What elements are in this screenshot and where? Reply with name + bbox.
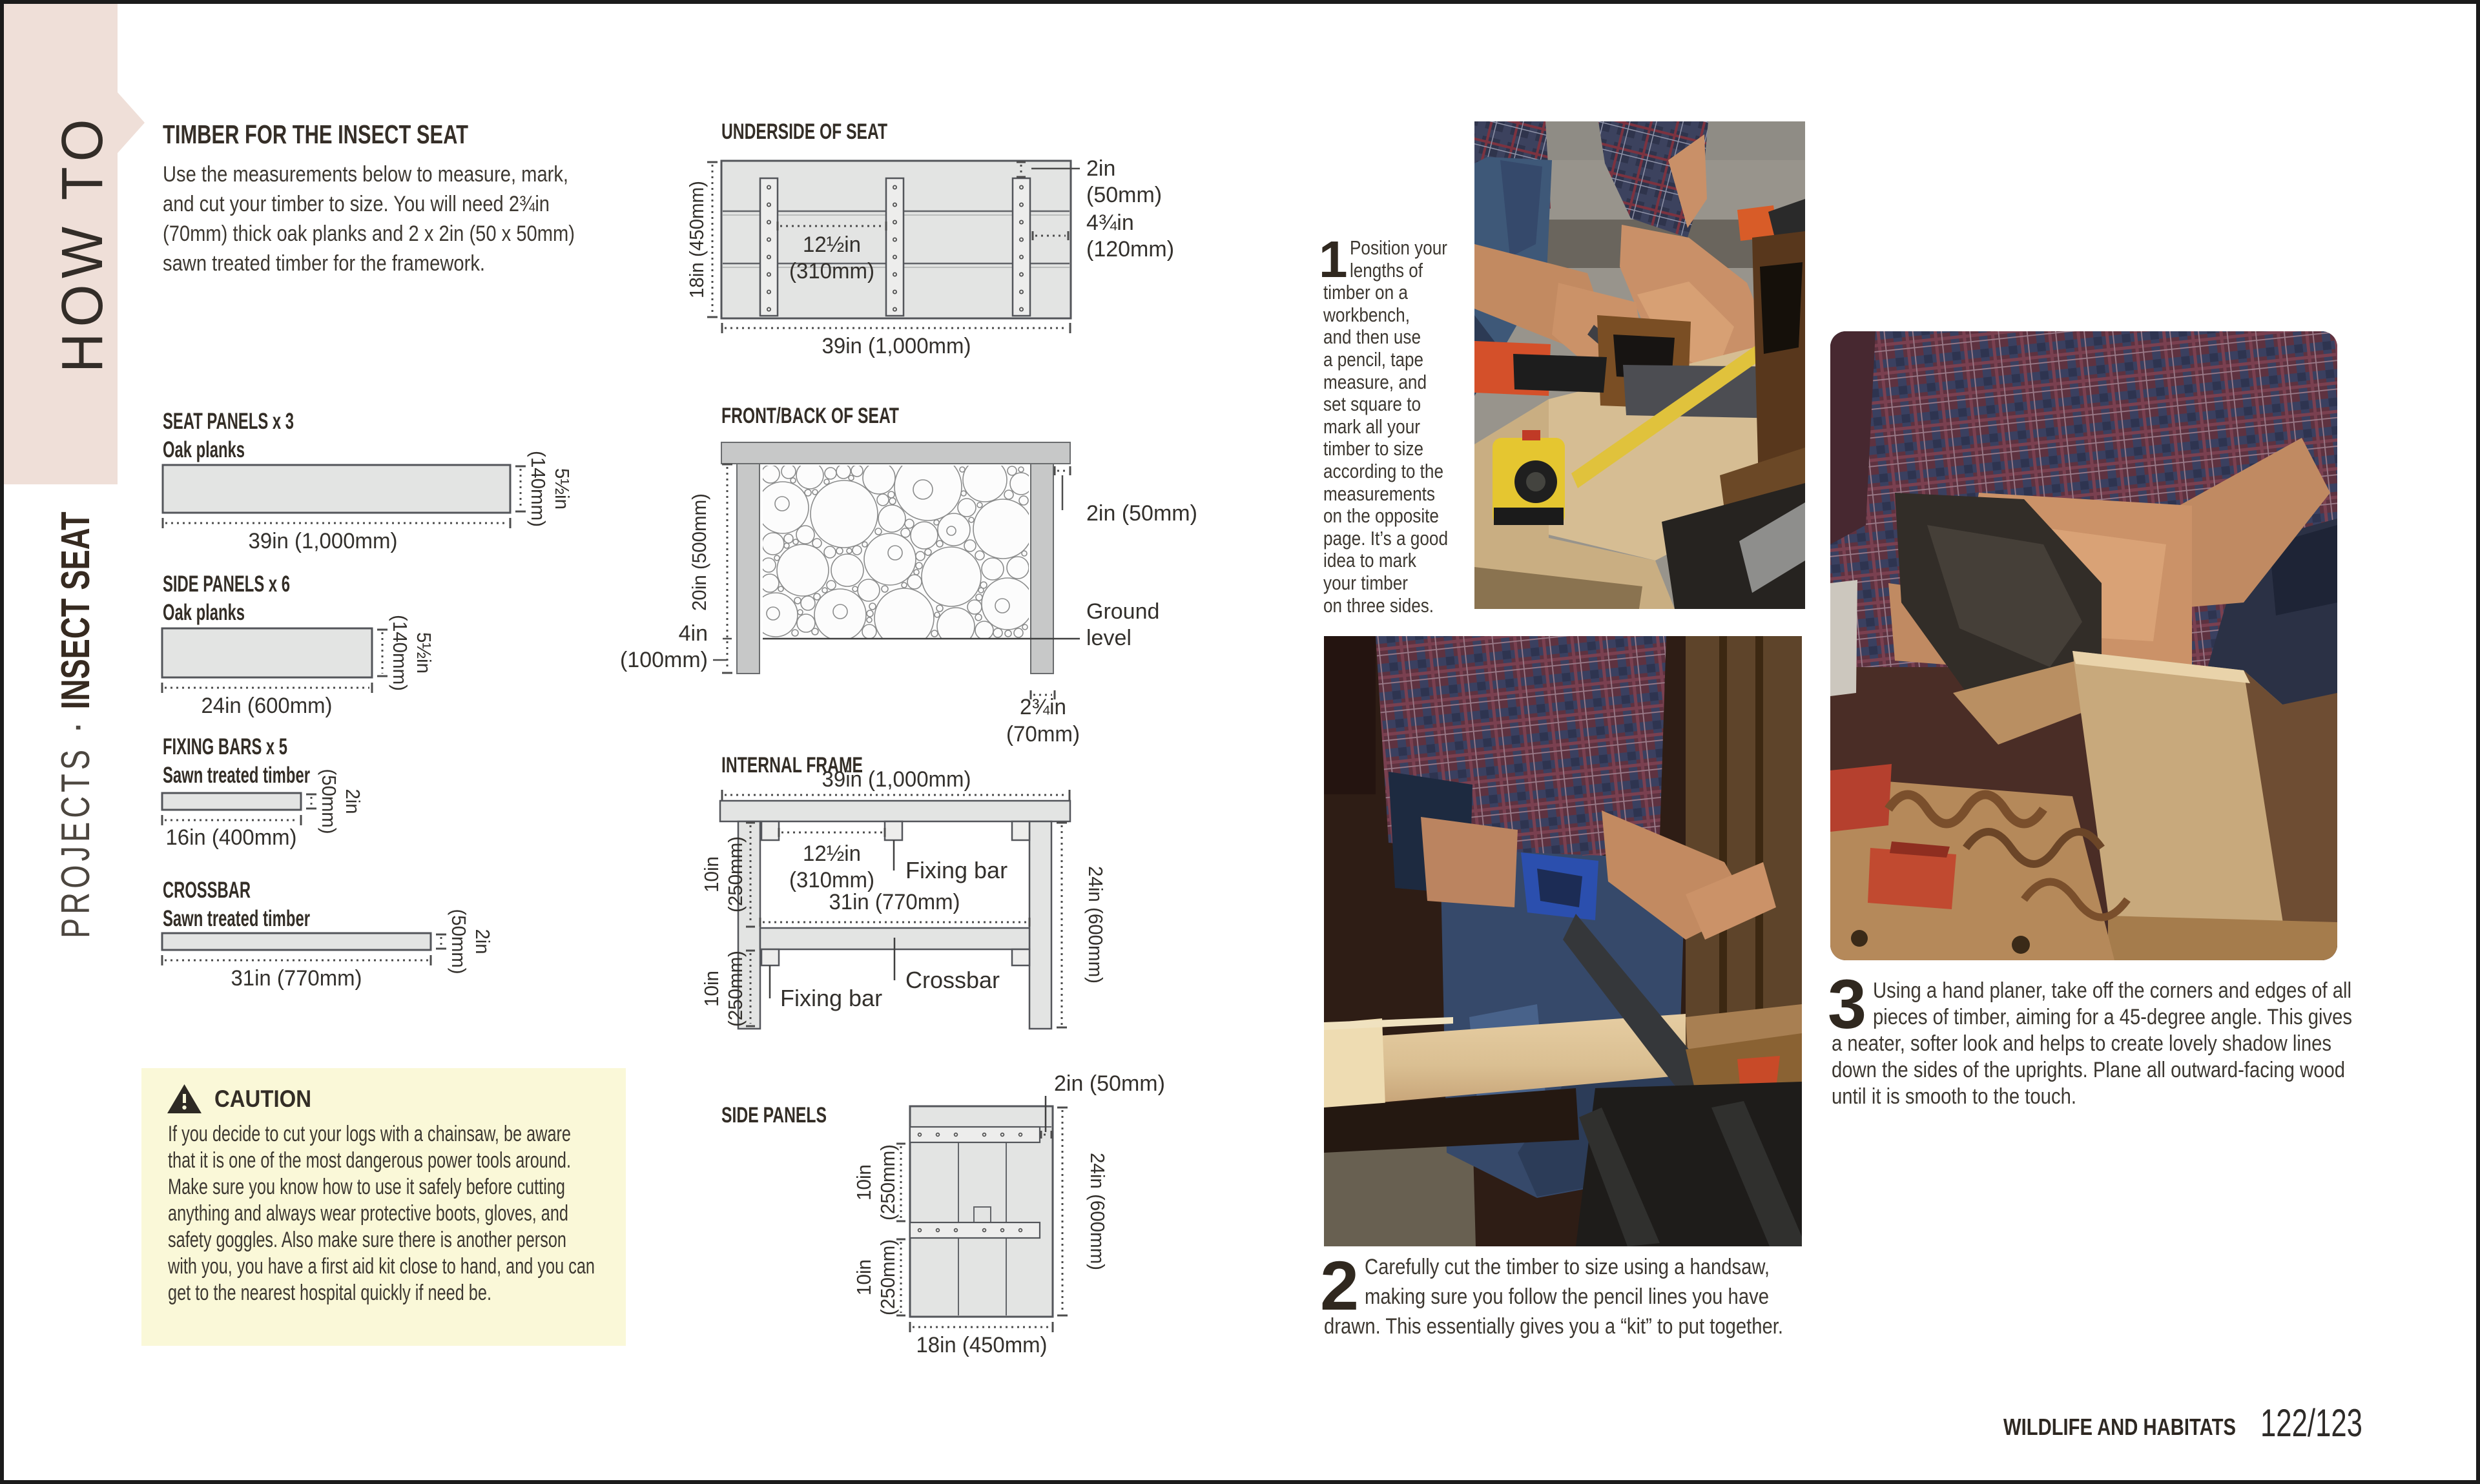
svg-text:(140mm): (140mm) [527,451,550,527]
svg-text:timber to size: timber to size [1323,437,1423,460]
svg-text:CROSSBAR: CROSSBAR [163,878,251,903]
svg-text:page. It’s a good: page. It’s a good [1323,527,1448,550]
svg-text:Position your: Position your [1350,236,1447,259]
svg-text:(100mm): (100mm) [620,648,708,672]
svg-text:SEAT PANELS x 3: SEAT PANELS x 3 [163,409,294,434]
svg-text:anything and always wear prote: anything and always wear protective boot… [168,1201,568,1226]
svg-text:(310mm): (310mm) [789,868,874,892]
svg-text:Fixing bar: Fixing bar [905,857,1008,883]
svg-text:31in (770mm): 31in (770mm) [829,890,960,914]
svg-text:12½in: 12½in [803,841,861,866]
svg-text:Use the measurements below to: Use the measurements below to measure, m… [163,162,568,187]
svg-text:making sure you follow the pen: making sure you follow the pencil lines … [1365,1284,1769,1309]
svg-text:Oak planks: Oak planks [163,600,245,625]
svg-text:down the sides of the uprights: down the sides of the uprights. Plane al… [1832,1058,2345,1082]
svg-text:sawn treated timber for the fr: sawn treated timber for the framework. [163,251,485,276]
svg-text:until it is smooth to the touc: until it is smooth to the touch. [1832,1084,2076,1109]
svg-text:a pencil, tape: a pencil, tape [1323,348,1423,371]
svg-text:10in: 10in [700,971,723,1007]
svg-text:Carefully cut the timber to si: Carefully cut the timber to size using a… [1365,1255,1770,1279]
svg-text:lengths of: lengths of [1350,259,1423,282]
svg-text:(250mm): (250mm) [724,836,747,912]
svg-text:4in: 4in [679,621,708,646]
svg-text:level: level [1086,626,1131,650]
svg-text:on the opposite: on the opposite [1323,504,1439,527]
svg-text:2¾in: 2¾in [1020,695,1066,719]
svg-text:2in: 2in [342,789,364,814]
svg-text:a neater, softer look and help: a neater, softer look and helps to creat… [1832,1031,2331,1056]
svg-text:(50mm): (50mm) [1086,183,1162,207]
svg-text:5½in: 5½in [551,468,573,510]
svg-text:39in (1,000mm): 39in (1,000mm) [249,529,398,553]
svg-text:according to the: according to the [1323,460,1443,482]
svg-text:If you decide to cut your logs: If you decide to cut your logs with a ch… [168,1122,571,1146]
svg-text:24in (600mm): 24in (600mm) [1084,866,1107,984]
svg-text:10in: 10in [700,856,723,892]
svg-text:WILDLIFE AND HABITATS: WILDLIFE AND HABITATS [2003,1414,2236,1440]
svg-text:HOW TO: HOW TO [50,113,115,373]
svg-text:that it is one of the most dan: that it is one of the most dangerous pow… [168,1148,571,1173]
svg-text:on three sides.: on three sides. [1323,594,1434,617]
svg-text:24in (600mm): 24in (600mm) [201,694,333,718]
svg-text:pieces of timber, aiming for a: pieces of timber, aiming for a 45-degree… [1873,1005,2352,1029]
svg-text:(120mm): (120mm) [1086,237,1174,262]
svg-text:your timber: your timber [1323,572,1408,594]
svg-text:CAUTION: CAUTION [214,1086,311,1112]
svg-text:get to the nearest hospital qu: get to the nearest hospital quickly if n… [168,1281,491,1305]
svg-text:UNDERSIDE OF SEAT: UNDERSIDE OF SEAT [721,119,887,144]
svg-text:set square to: set square to [1323,393,1421,415]
svg-text:Using a hand planer, take off: Using a hand planer, take off the corner… [1873,978,2351,1003]
svg-text:18in (450mm): 18in (450mm) [916,1333,1048,1357]
svg-text:FIXING BARS x 5: FIXING BARS x 5 [163,734,287,759]
svg-text:2in: 2in [1086,156,1115,181]
svg-text:12½in: 12½in [803,232,861,257]
svg-text:FRONT/BACK OF SEAT: FRONT/BACK OF SEAT [721,404,899,428]
svg-text:TIMBER FOR THE INSECT SEAT: TIMBER FOR THE INSECT SEAT [163,119,468,149]
svg-text:4¾in: 4¾in [1086,211,1134,235]
svg-text:31in (770mm): 31in (770mm) [231,966,362,991]
svg-text:122/123: 122/123 [2260,1401,2362,1445]
svg-text:(250mm): (250mm) [876,1239,899,1315]
svg-text:and then use: and then use [1323,325,1421,348]
svg-text:10in: 10in [852,1164,875,1201]
svg-text:with you, you have a first aid: with you, you have a first aid kit close… [167,1254,595,1279]
svg-text:and cut your timber to size. Y: and cut your timber to size. You will ne… [163,192,550,216]
svg-text:20in (500mm): 20in (500mm) [688,493,710,611]
svg-text:2in (50mm): 2in (50mm) [1086,501,1197,526]
svg-text:24in (600mm): 24in (600mm) [1086,1153,1109,1270]
svg-text:(50mm): (50mm) [318,769,340,834]
svg-text:SIDE PANELS x 6: SIDE PANELS x 6 [163,572,290,597]
svg-text:(50mm): (50mm) [448,909,470,974]
svg-text:idea to mark: idea to mark [1323,549,1416,572]
svg-text:(70mm) thick oak planks and 2: (70mm) thick oak planks and 2 x 2in (50 … [163,222,575,246]
svg-text:Sawn treated timber: Sawn treated timber [163,763,310,788]
svg-text:SIDE PANELS: SIDE PANELS [721,1103,827,1128]
svg-text:(140mm): (140mm) [389,615,411,691]
svg-text:mark all your: mark all your [1323,415,1420,438]
svg-text:(70mm): (70mm) [1006,722,1080,747]
svg-text:18in (450mm): 18in (450mm) [685,181,708,298]
svg-text:Oak planks: Oak planks [163,437,245,462]
svg-text:Sawn treated timber: Sawn treated timber [163,906,310,931]
svg-text:timber on a: timber on a [1323,281,1409,304]
svg-text:2in (50mm): 2in (50mm) [1054,1071,1165,1096]
svg-text:(310mm): (310mm) [789,259,874,283]
svg-text:drawn. This essentially gives: drawn. This essentially gives you a “kit… [1324,1314,1783,1339]
svg-text:measurements: measurements [1323,482,1435,505]
svg-text:39in (1,000mm): 39in (1,000mm) [822,334,971,358]
svg-text:measure, and: measure, and [1323,371,1427,393]
svg-text:2: 2 [1320,1246,1359,1324]
svg-text:Fixing bar: Fixing bar [780,985,882,1011]
svg-text:Crossbar: Crossbar [905,967,1000,993]
svg-text:workbench,: workbench, [1323,304,1410,326]
svg-text:10in: 10in [852,1259,875,1295]
svg-text:5½in: 5½in [413,632,435,674]
svg-text:39in (1,000mm): 39in (1,000mm) [822,767,971,792]
svg-text:2in: 2in [471,929,494,954]
svg-text:PROJECTS·INSECT SEAT: PROJECTS·INSECT SEAT [54,511,98,938]
svg-text:(250mm): (250mm) [724,951,747,1027]
svg-text:(250mm): (250mm) [876,1144,899,1221]
svg-text:safety goggles. Also make sure: safety goggles. Also make sure there is … [168,1228,566,1252]
svg-text:Make sure you know how to use: Make sure you know how to use it safely … [168,1175,565,1199]
svg-text:1: 1 [1319,231,1348,288]
svg-text:16in (400mm): 16in (400mm) [166,825,297,850]
svg-text:Ground: Ground [1086,599,1159,624]
